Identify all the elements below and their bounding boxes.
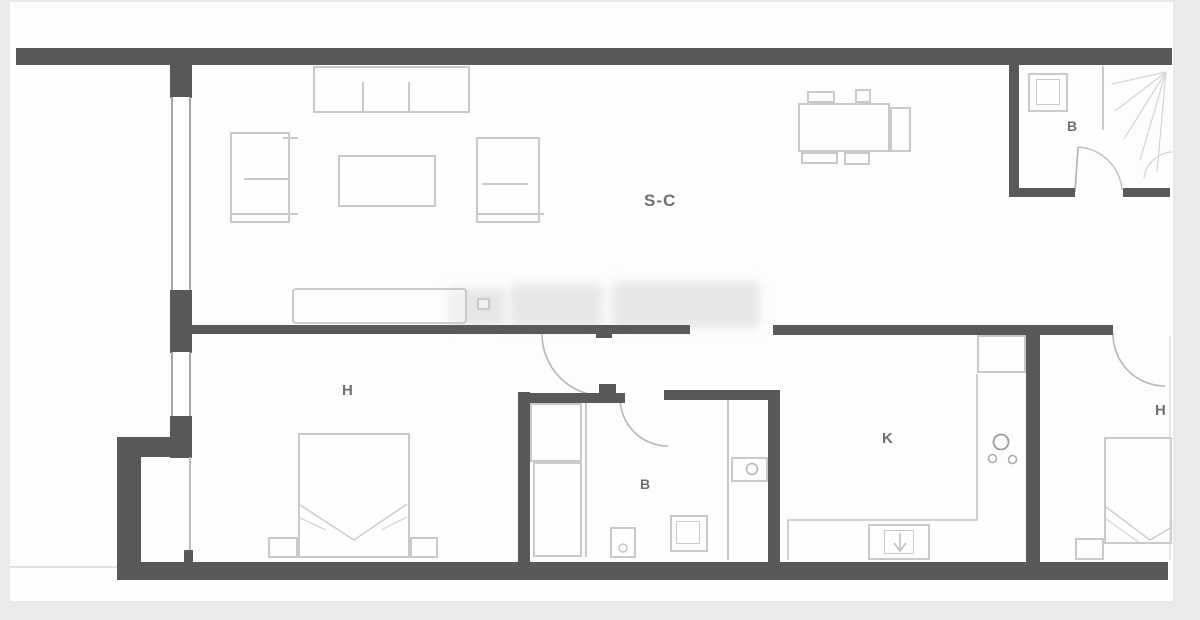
armchair-cushion-line (244, 178, 288, 180)
room-label-kitchen: K (882, 431, 893, 446)
kitchen-sink-bowl (884, 530, 914, 554)
wall-interior-main-left (190, 325, 690, 334)
shower-screen-line (585, 403, 587, 557)
side-table (477, 298, 490, 310)
dining-chair (844, 152, 870, 165)
partition-line (727, 400, 729, 560)
room-label-bathroom-1: B (640, 477, 650, 491)
armchair-front-line (478, 213, 544, 215)
wall-exterior-left (170, 64, 192, 98)
window (171, 97, 191, 291)
dining-table (798, 103, 890, 152)
coffee-table (338, 155, 436, 207)
nightstand (1075, 538, 1104, 560)
wall-bathroom-right (768, 390, 780, 562)
room-label-living-dining: S-C (644, 192, 676, 209)
washbasin-bowl (676, 521, 700, 544)
wall-inner-face-line (189, 457, 191, 557)
bed-double (298, 433, 410, 558)
vanity-sink (1028, 73, 1068, 112)
armchair-arm-mark (283, 137, 298, 139)
wall-exterior-top (16, 48, 1172, 65)
wall-bathroom2-bottom-left (1009, 188, 1075, 197)
bathroom-cabinet (530, 403, 582, 462)
wall-bathroom2-bottom-right (1123, 188, 1170, 197)
window (171, 352, 191, 417)
kitchen-sink-unit (868, 524, 930, 560)
sofa (292, 288, 467, 324)
door-hinge-nub (599, 384, 616, 395)
room-label-bedroom-1: H (342, 383, 353, 398)
wall-exterior-bottom (117, 562, 1168, 580)
sideboard-divider (362, 82, 364, 113)
door-hinge-nub (596, 326, 612, 338)
bed-double (1104, 437, 1172, 544)
dining-chair (801, 152, 838, 164)
wall-exterior-left-lower (117, 437, 141, 580)
wall-bathroom2-left (1009, 64, 1019, 193)
sideboard (313, 66, 470, 113)
armchair-left (230, 132, 290, 223)
dining-chair (807, 91, 835, 103)
wall-bathroom-top-right (664, 390, 778, 400)
room-label-bathroom-2: B (1067, 119, 1077, 133)
shower-partition-line (1102, 66, 1104, 130)
floor-plan-screenshot: S-C H B K H B (0, 0, 1200, 620)
appliance (731, 457, 768, 482)
watermark-blob (510, 284, 602, 328)
armchair-right (476, 137, 540, 223)
dining-chair (855, 89, 871, 103)
toilet (610, 527, 636, 558)
dining-chair (890, 107, 911, 152)
wall-kitchen-bedroom-divider (1026, 327, 1040, 562)
armchair-front-line (230, 213, 298, 215)
wall-exterior-left (170, 290, 192, 353)
sideboard-divider (408, 82, 410, 113)
vanity-bowl (1036, 79, 1060, 105)
kitchen-counter-top (977, 335, 1026, 373)
wall-bathroom-left (518, 392, 530, 562)
nightstand (268, 537, 298, 558)
wall-nub (184, 550, 193, 564)
armchair-cushion-line (482, 183, 528, 185)
watermark-blob (612, 282, 760, 328)
wall-interior-main-right (773, 325, 1113, 335)
nightstand (410, 537, 438, 558)
room-label-bedroom-2: H (1155, 403, 1166, 418)
washbasin (670, 515, 708, 552)
shower-tray (533, 462, 582, 557)
